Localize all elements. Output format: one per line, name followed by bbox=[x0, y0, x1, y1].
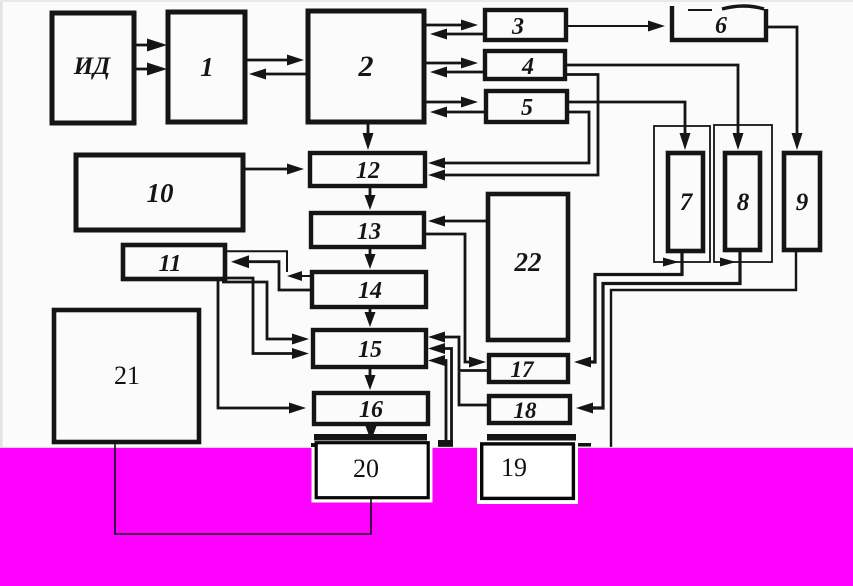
svg-text:2: 2 bbox=[358, 50, 374, 83]
svg-text:3: 3 bbox=[511, 14, 524, 40]
svg-text:18: 18 bbox=[514, 398, 538, 423]
svg-text:8: 8 bbox=[737, 189, 750, 216]
svg-text:11: 11 bbox=[159, 251, 182, 277]
svg-text:21: 21 bbox=[114, 361, 140, 390]
svg-text:22: 22 bbox=[514, 247, 542, 277]
svg-text:17: 17 bbox=[511, 357, 536, 382]
svg-text:10: 10 bbox=[147, 178, 175, 208]
svg-text:ИД: ИД bbox=[73, 53, 111, 80]
svg-text:16: 16 bbox=[359, 397, 383, 423]
svg-text:19: 19 bbox=[501, 453, 527, 482]
svg-text:20: 20 bbox=[353, 454, 379, 483]
svg-text:13: 13 bbox=[357, 219, 381, 245]
svg-text:6: 6 bbox=[715, 13, 727, 39]
svg-text:7: 7 bbox=[680, 189, 694, 216]
svg-text:15: 15 bbox=[358, 337, 382, 363]
svg-text:4: 4 bbox=[521, 54, 534, 80]
svg-text:5: 5 bbox=[521, 95, 533, 121]
svg-text:12: 12 bbox=[356, 158, 380, 184]
svg-text:1: 1 bbox=[200, 52, 214, 82]
svg-text:14: 14 bbox=[358, 278, 382, 304]
svg-text:9: 9 bbox=[796, 189, 809, 216]
